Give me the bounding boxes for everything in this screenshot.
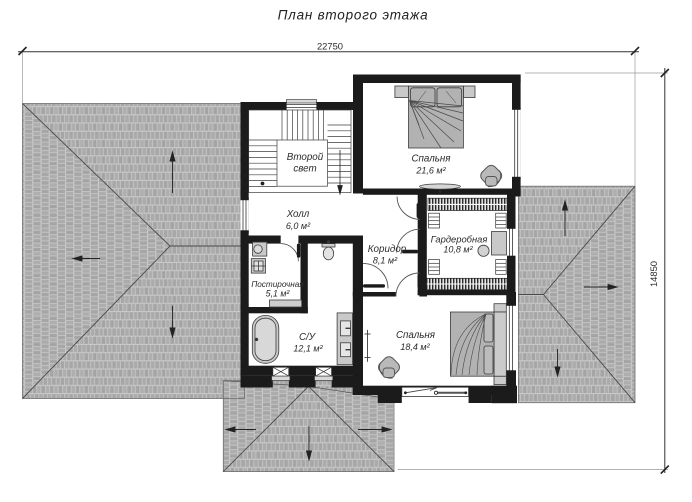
svg-text:14850: 14850	[648, 261, 659, 287]
svg-text:5,1 м²: 5,1 м²	[266, 289, 291, 299]
svg-text:22750: 22750	[317, 41, 343, 52]
svg-text:С/У: С/У	[299, 332, 317, 343]
svg-text:18,4 м²: 18,4 м²	[400, 342, 430, 352]
svg-text:План второго этажа: План второго этажа	[278, 8, 429, 23]
svg-text:8,1 м²: 8,1 м²	[373, 256, 398, 266]
svg-text:Второй: Второй	[287, 152, 324, 163]
svg-text:свет: свет	[293, 164, 316, 175]
svg-text:Спальня: Спальня	[411, 154, 451, 165]
svg-text:6,0 м²: 6,0 м²	[286, 221, 311, 231]
svg-text:10,8 м²: 10,8 м²	[443, 245, 473, 255]
svg-text:12,1 м²: 12,1 м²	[293, 344, 323, 354]
svg-text:21,6 м²: 21,6 м²	[415, 166, 446, 176]
svg-text:Гардеробная: Гардеробная	[431, 234, 488, 245]
svg-text:Коридор: Коридор	[368, 244, 407, 255]
svg-text:Холл: Холл	[286, 209, 310, 220]
svg-text:Спальня: Спальня	[396, 330, 436, 341]
